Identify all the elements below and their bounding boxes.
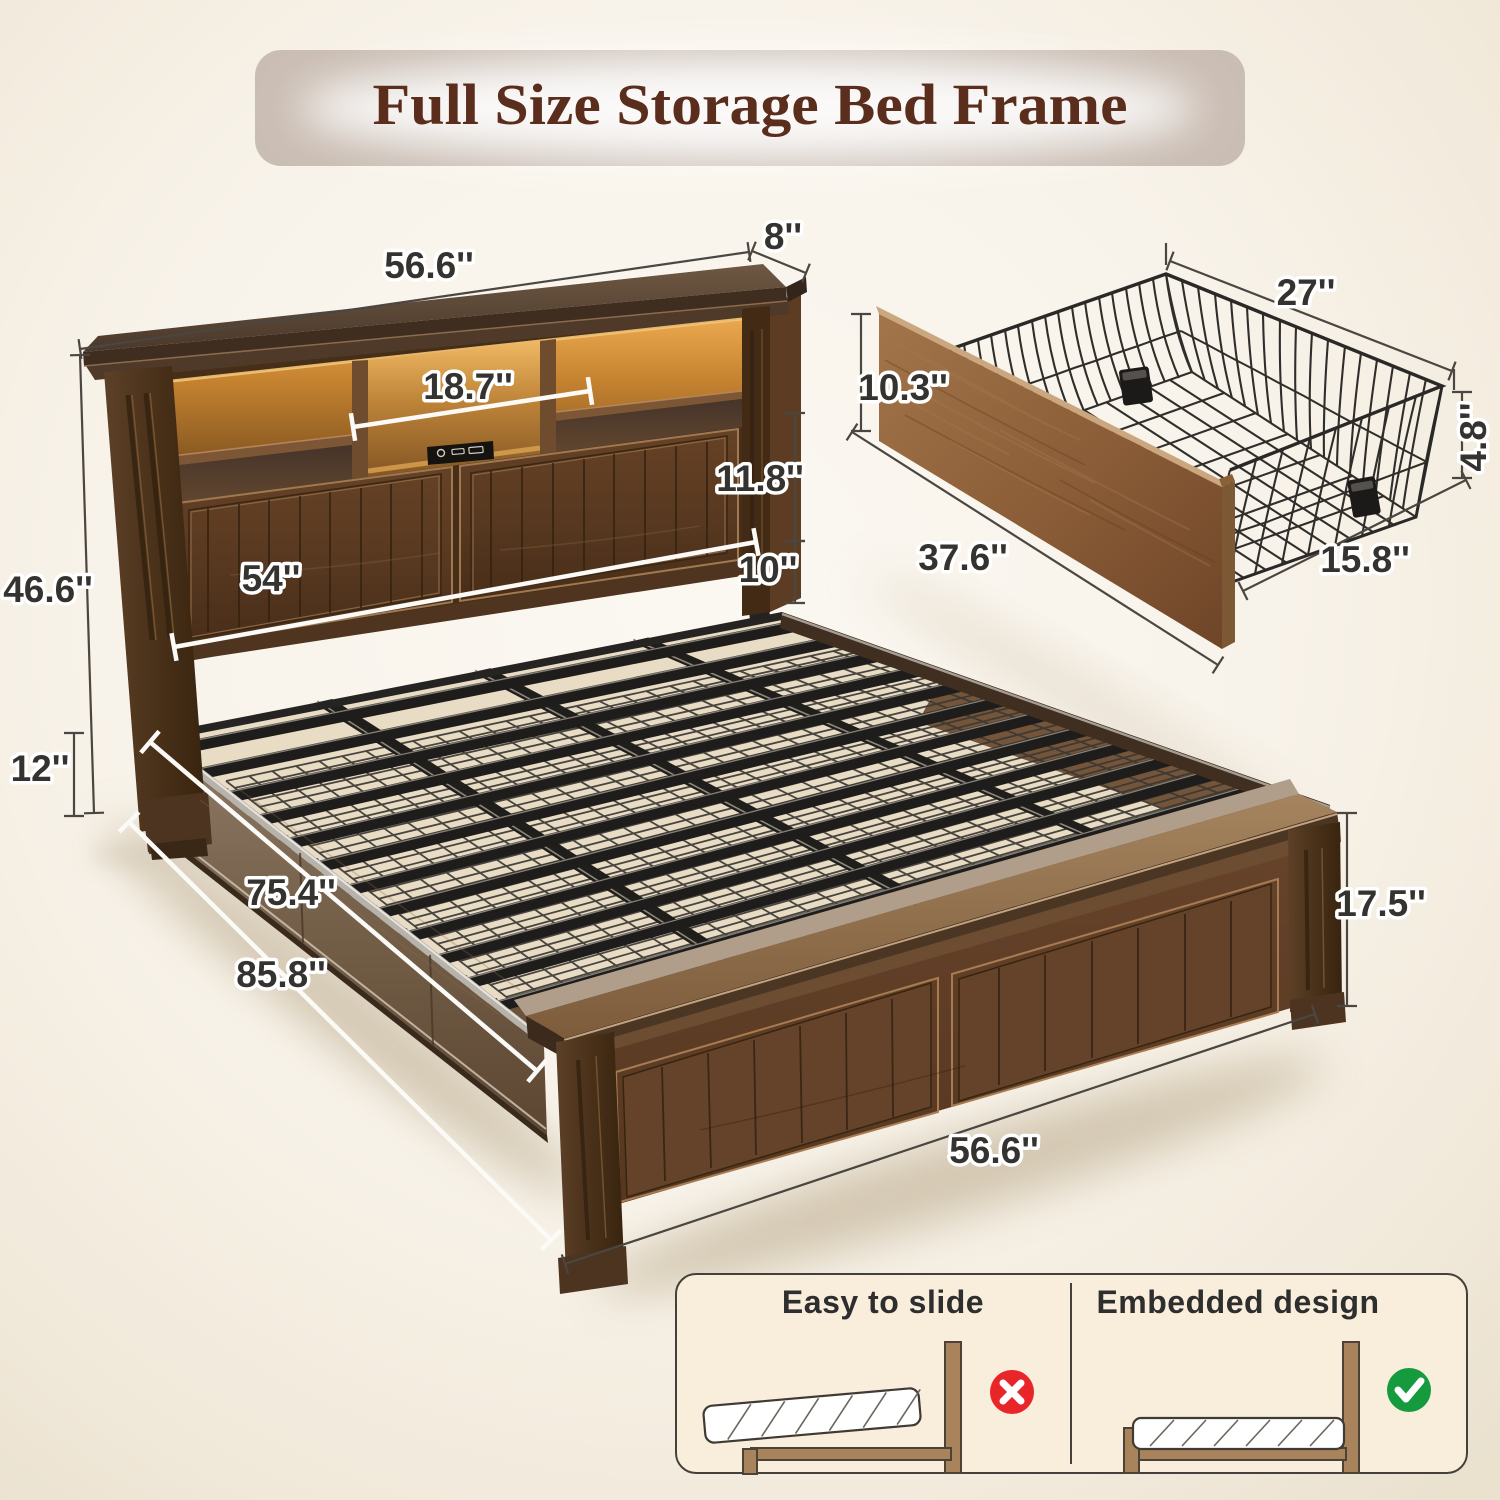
svg-text:12'': 12''	[11, 748, 70, 789]
svg-text:18.7'': 18.7''	[423, 366, 513, 407]
svg-text:Full Size Storage Bed Frame: Full Size Storage Bed Frame	[373, 72, 1128, 137]
svg-text:75.4'': 75.4''	[246, 872, 336, 913]
svg-text:10.3'': 10.3''	[858, 367, 948, 408]
svg-text:17.5'': 17.5''	[1336, 883, 1426, 924]
svg-text:56.6'': 56.6''	[384, 245, 474, 286]
svg-text:10'': 10''	[739, 549, 798, 590]
svg-text:46.6'': 46.6''	[3, 569, 93, 610]
svg-text:56.6'': 56.6''	[949, 1130, 1039, 1171]
svg-text:37.6'': 37.6''	[918, 537, 1008, 578]
svg-text:8'': 8''	[764, 216, 802, 257]
svg-text:11.8'': 11.8''	[716, 458, 804, 499]
svg-text:54'': 54''	[242, 558, 301, 599]
svg-text:27'': 27''	[1277, 272, 1336, 313]
svg-text:4.8'': 4.8''	[1453, 402, 1494, 471]
svg-text:Embedded design: Embedded design	[1096, 1284, 1379, 1320]
svg-text:15.8'': 15.8''	[1320, 539, 1410, 580]
svg-text:Easy to slide: Easy to slide	[782, 1284, 984, 1320]
svg-text:85.8'': 85.8''	[236, 954, 326, 995]
